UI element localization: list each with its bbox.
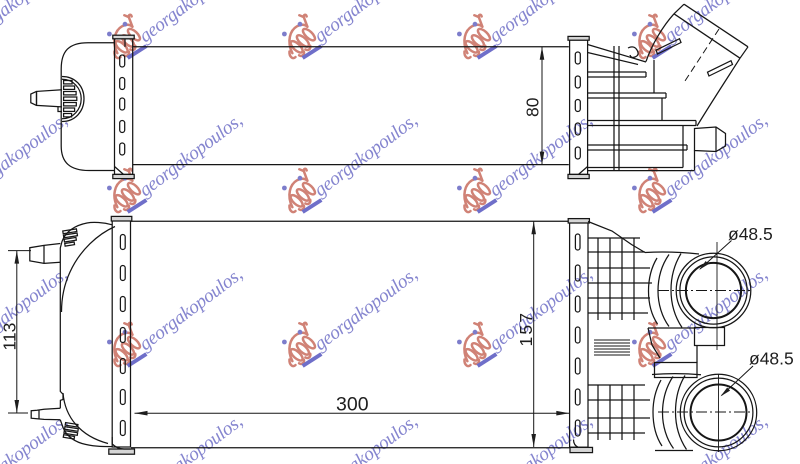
svg-text:300: 300 bbox=[336, 393, 369, 415]
svg-text:80: 80 bbox=[522, 97, 542, 117]
svg-text:ø48.5: ø48.5 bbox=[728, 224, 773, 244]
svg-text:157: 157 bbox=[516, 313, 536, 347]
svg-text:ø48.5: ø48.5 bbox=[749, 349, 794, 369]
svg-text:113: 113 bbox=[0, 323, 20, 351]
